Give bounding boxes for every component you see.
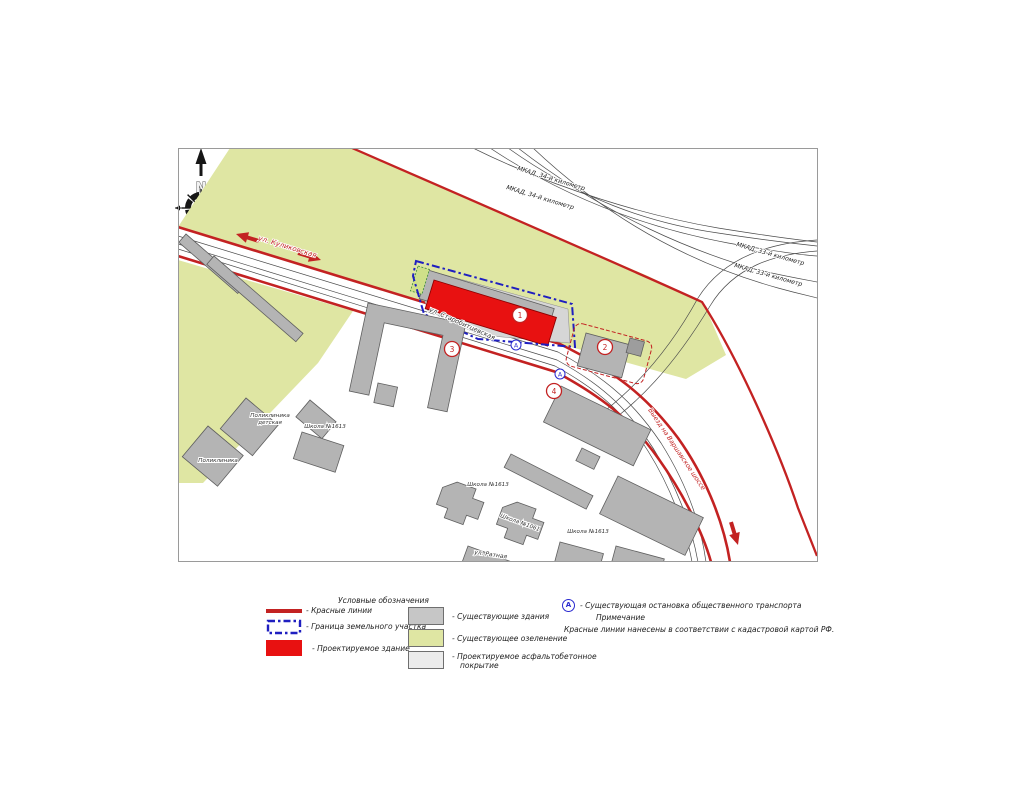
marker-2: 2 <box>598 340 613 355</box>
bus-stop-marker-2: А <box>555 369 565 379</box>
existing-greenery-swatch <box>408 629 444 647</box>
red-line-swatch <box>266 609 302 613</box>
arrow-south-exit-icon <box>726 520 744 546</box>
marker-4: 4 <box>547 384 562 399</box>
mkad-34km-label-2: МКАД, 34-й километр <box>505 184 574 211</box>
legend-note-text: Красные линии нанесены в соответствии с … <box>564 625 834 634</box>
site-plan-page: N <box>0 0 1024 786</box>
label-school-1613-center: Школа №1613 <box>467 482 509 488</box>
marker-3: 3 <box>445 342 460 357</box>
site-plan-map: ул. Куликовская ул. Старобитцевская Выез… <box>178 148 818 562</box>
legend-bus-stop-label: - Существующая остановка общественного т… <box>580 601 801 610</box>
building <box>600 476 704 555</box>
building <box>554 542 603 562</box>
building <box>576 448 600 469</box>
legend-bus-stop-icon: А <box>562 599 575 612</box>
projected-building-swatch <box>266 640 302 656</box>
street-label-varshavskoe-exit: Выезд на Варшавское шоссе <box>646 407 707 492</box>
svg-text:2: 2 <box>603 343 608 352</box>
building-school-west <box>293 432 343 472</box>
legend-projected-pavement-label-line1: - Проектируемое асфальтобетонное <box>452 652 597 661</box>
legend-note-title: Примечание <box>596 613 645 622</box>
svg-text:1: 1 <box>518 311 523 320</box>
building <box>626 338 644 356</box>
plot-boundary-swatch <box>266 619 302 635</box>
building <box>374 383 398 407</box>
label-polyclinic-children-line1: Поликлиника <box>250 413 290 419</box>
projected-pavement-swatch <box>408 651 444 669</box>
legend-red-lines-label: - Красные линии <box>306 606 372 615</box>
mkad-34km-label-1: МКАД, 34-й километр <box>516 165 585 192</box>
mkad-33km-label-2: МКАД, 33-й километр <box>733 262 803 288</box>
label-polyclinic: Поликлиника <box>198 458 238 464</box>
legend-existing-greenery-label: - Существующее озеленение <box>452 634 567 643</box>
legend-projected-building-label: - Проектируемое здание <box>312 644 410 653</box>
existing-buildings-swatch <box>408 607 444 625</box>
label-school-1613-west: Школа №1613 <box>304 424 346 430</box>
marker-1: 1 <box>513 308 528 323</box>
legend-projected-pavement-label-line2: покрытие <box>460 661 499 670</box>
legend-existing-buildings-label: - Существующие здания <box>452 612 549 621</box>
svg-text:3: 3 <box>450 345 455 354</box>
svg-text:4: 4 <box>552 387 557 396</box>
mkad-33km-label-1: МКАД, 33-й километр <box>735 241 805 267</box>
label-school-1613-east: Школа №1613 <box>567 529 609 535</box>
building <box>611 546 664 562</box>
label-polyclinic-children-line2: детская <box>257 420 282 426</box>
bus-stop-marker-1: А <box>511 340 521 350</box>
legend-title: Условные обозначения <box>338 596 429 605</box>
